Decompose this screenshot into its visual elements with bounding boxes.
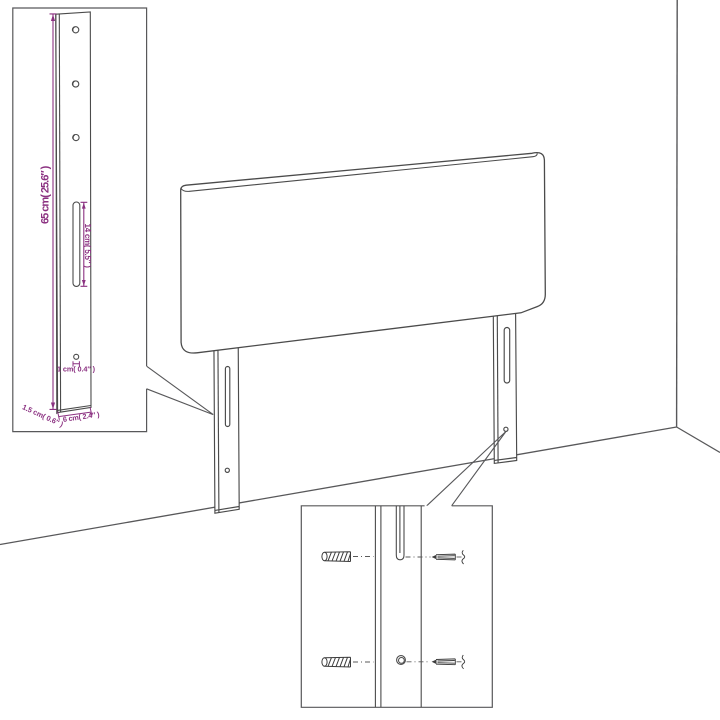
svg-text:65 cm( 25.6″ ): 65 cm( 25.6″ )	[40, 165, 52, 224]
svg-text:14 cm( 5.5″ ): 14 cm( 5.5″ )	[83, 224, 92, 269]
svg-text:1 cm( 0.4″ ): 1 cm( 0.4″ )	[57, 365, 96, 374]
